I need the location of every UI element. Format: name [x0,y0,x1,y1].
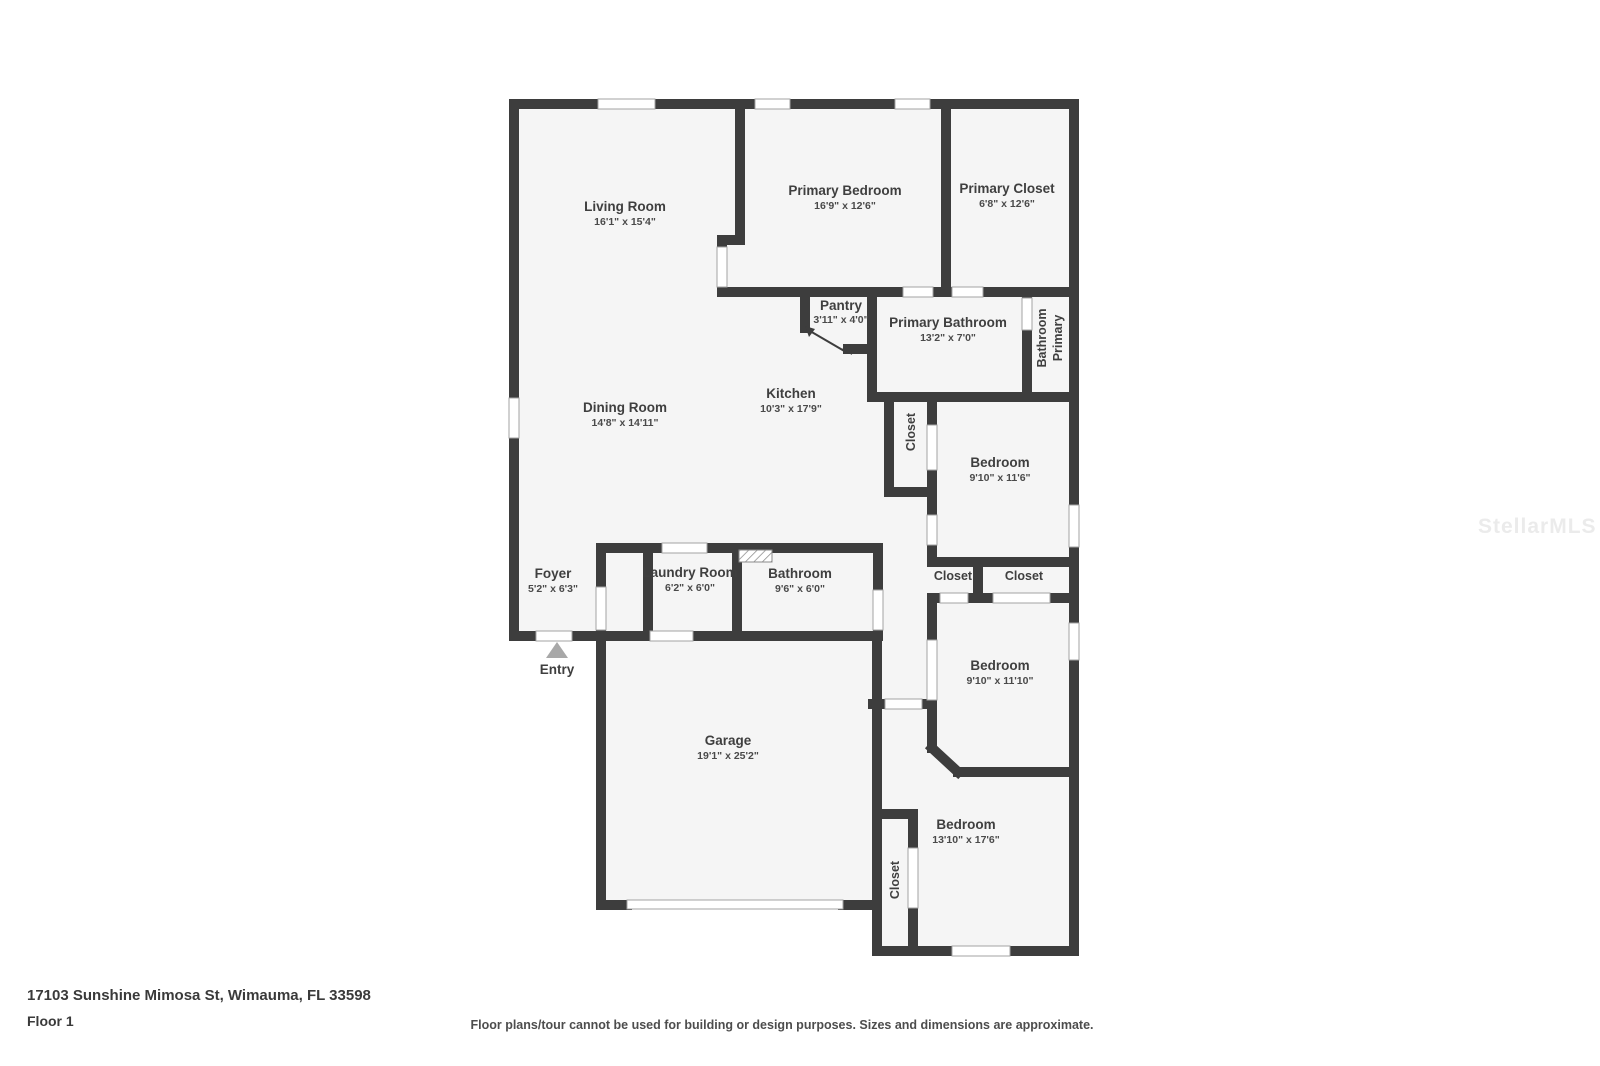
window [598,99,655,109]
room-label-closet-bottom: Closet [888,860,902,899]
window [755,99,790,109]
window [895,99,930,109]
floor-plan-canvas: Living Room 16'1" x 15'4" Primary Bedroo… [0,0,1600,1066]
room-dims-primary-bedroom: 16'9" x 12'6" [814,200,876,212]
entry-arrow-icon [546,642,568,658]
room-label-bedroom2: Bedroom [970,658,1029,673]
disclaimer-text: Floor plans/tour cannot be used for buil… [470,1018,1093,1032]
door-opening [908,848,918,908]
room-dims-bedroom1: 9'10" x 11'6" [969,472,1030,484]
door-opening [993,593,1050,603]
room-label-bedroom3: Bedroom [936,817,995,832]
room-dims-garage: 19'1" x 25'2" [697,750,759,762]
room-dims-primary-closet: 6'8" x 12'6" [979,198,1035,210]
door-opening [873,590,883,630]
room-label-foyer: Foyer [535,566,573,581]
room-label-primary-bedroom: Primary Bedroom [788,183,901,198]
hatched-fixture [739,550,772,562]
room-dims-bedroom2: 9'10" x 11'10" [967,675,1034,687]
door-opening [927,640,937,700]
door-opening [717,247,727,287]
room-label-kitchen: Kitchen [766,386,816,401]
room-label-closet-hall-1: Closet [934,569,973,583]
door-opening [885,699,922,709]
door-opening [1022,298,1032,330]
room-label-laundry: Laundry Room [642,565,737,580]
room-dims-dining: 14'8" x 14'11" [592,417,659,429]
room-dims-bathroom: 9'6" x 6'0" [775,583,825,595]
window [1069,505,1079,547]
room-label-primary-bathroom: Primary Bathroom [889,315,1007,330]
floor-label: Floor 1 [27,1013,74,1029]
window [509,398,519,438]
room-dims-primary-bathroom: 13'2" x 7'0" [920,332,976,344]
room-dims-laundry: 6'2" x 6'0" [665,582,715,594]
room-dims-foyer: 5'2" x 6'3" [528,583,578,595]
room-dims-kitchen: 10'3" x 17'9" [760,403,822,415]
room-label-primary-bath-strip-line1: Primary [1051,315,1065,362]
room-label-closet-kitchen: Closet [904,412,918,451]
room-label-primary-bath-strip-line2: Bathroom [1035,308,1049,367]
window [1069,623,1079,660]
room-dims-bedroom3: 13'10" x 17'6" [932,834,1000,846]
room-label-dining: Dining Room [583,400,667,415]
door-opening [952,287,983,297]
door-opening [903,287,933,297]
floor-plan-page: Living Room 16'1" x 15'4" Primary Bedroo… [0,0,1600,1066]
room-label-primary-closet: Primary Closet [959,181,1055,196]
entry-door-opening [536,631,572,641]
address-text: 17103 Sunshine Mimosa St, Wimauma, FL 33… [27,987,371,1004]
door-opening [940,593,968,603]
room-label-bedroom1: Bedroom [970,455,1029,470]
window [952,946,1010,956]
door-opening [927,425,937,470]
room-label-garage: Garage [705,733,752,748]
door-opening [596,587,606,630]
entry-label: Entry [540,662,575,677]
door-opening [927,515,937,545]
room-label-closet-hall-2: Closet [1005,569,1044,583]
watermark: StellarMLS [1478,515,1597,538]
door-opening [650,631,693,641]
room-label-bathroom: Bathroom [768,566,832,581]
room-dims-living: 16'1" x 15'4" [594,216,656,228]
room-dims-pantry: 3'11" x 4'0" [813,314,868,326]
garage-door-opening [627,900,843,909]
room-label-living: Living Room [584,199,666,214]
window [662,543,707,553]
room-label-pantry: Pantry [820,298,863,313]
